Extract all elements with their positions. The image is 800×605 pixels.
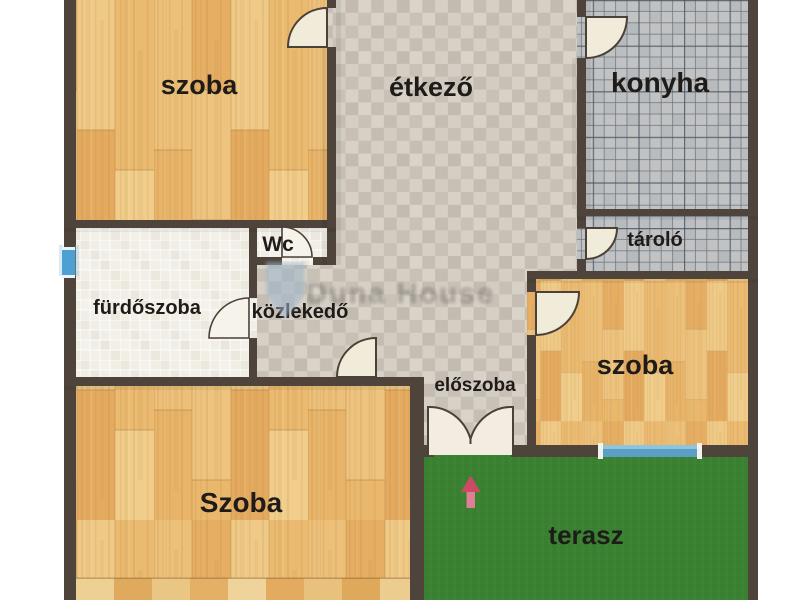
svg-text:előszoba: előszoba — [434, 375, 516, 396]
svg-text:Duna House: Duna House — [306, 278, 495, 310]
svg-text:étkező: étkező — [389, 72, 473, 102]
svg-text:tároló: tároló — [627, 229, 683, 251]
svg-text:Wc: Wc — [262, 233, 294, 256]
svg-text:Szoba: Szoba — [200, 487, 283, 518]
svg-text:fürdőszoba: fürdőszoba — [93, 297, 202, 319]
svg-text:konyha: konyha — [611, 67, 709, 98]
svg-text:szoba: szoba — [597, 350, 675, 380]
svg-text:terasz: terasz — [548, 520, 623, 550]
svg-text:szoba: szoba — [161, 70, 239, 100]
